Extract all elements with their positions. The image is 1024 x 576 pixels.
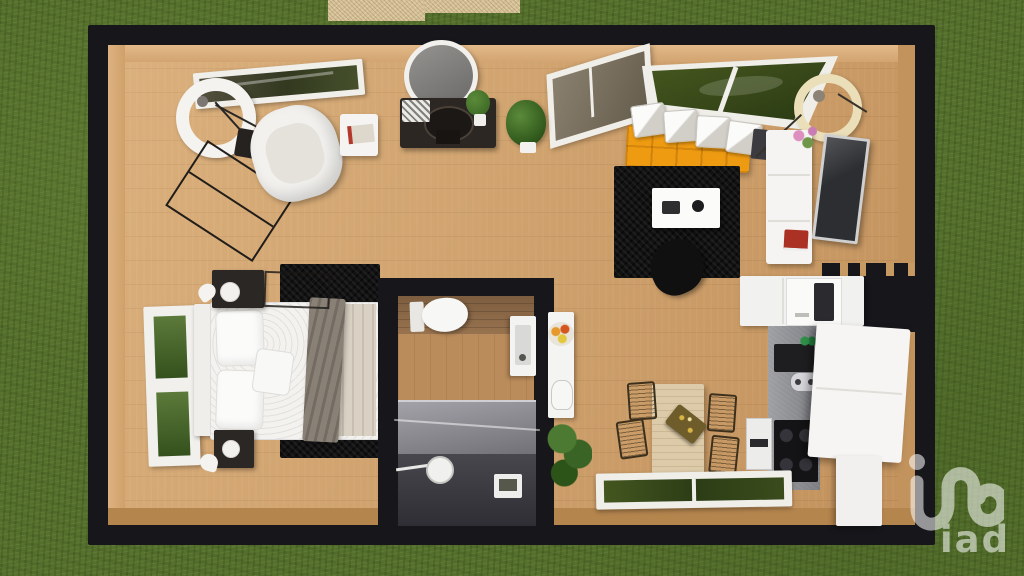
console-seam: [768, 220, 810, 222]
dining-chair: [707, 393, 738, 433]
lamp-bulb: [197, 96, 208, 107]
red-books: [783, 229, 808, 251]
bedroom-window: [143, 305, 201, 467]
cabinet-seam: [782, 278, 784, 324]
plant-pot: [520, 142, 536, 153]
remote: [662, 201, 680, 214]
washbasin: [510, 316, 536, 376]
microwave-buttons: [795, 313, 809, 317]
side-table: [340, 114, 378, 156]
microwave-door: [814, 283, 834, 321]
tissue-box: [402, 100, 430, 122]
watermark: iad: [898, 446, 1020, 566]
table-lamp: [220, 282, 240, 302]
drain: [519, 354, 526, 361]
console-seam: [768, 174, 810, 176]
faucet-knob: [795, 379, 801, 385]
flowers: [788, 124, 824, 150]
gravel-terrace-right: [424, 0, 520, 13]
plant-pot: [474, 114, 486, 126]
potted-plant: [506, 100, 546, 146]
sofa-cushion: [663, 109, 699, 143]
wall-hung-toilet: [409, 297, 470, 335]
book: [347, 124, 375, 145]
bathroom-wall-top: [378, 278, 554, 296]
decor-object: [692, 200, 704, 212]
gray-throw: [302, 297, 345, 443]
floor-plan-render: iad: [0, 0, 1024, 576]
glass-edge: [394, 419, 540, 431]
shower-glass: [398, 400, 536, 458]
door-divider: [589, 67, 594, 117]
nightstand-frame: [263, 271, 330, 309]
handle-slot: [750, 439, 768, 447]
dishwasher: [746, 418, 772, 470]
gravel-terrace-left: [328, 0, 425, 21]
dining-chair: [615, 418, 648, 460]
kettle: [551, 380, 573, 410]
dining-chair: [627, 381, 658, 421]
accent-cushion: [251, 348, 295, 397]
mini-plant: [466, 90, 490, 116]
window-divider: [692, 479, 696, 501]
sofa-cushion: [630, 102, 668, 138]
island-cart: [836, 456, 882, 526]
window-glass: [154, 315, 188, 378]
lamp-bulb: [813, 90, 825, 102]
bottom-window: [596, 470, 793, 509]
coffee-table: [652, 188, 720, 228]
kitchen-corner-wall: [860, 276, 932, 332]
fruit-bowl: [548, 322, 574, 346]
bathroom-wall-left: [378, 278, 398, 545]
rain-shower-head: [426, 456, 454, 484]
table-lamp: [222, 440, 240, 458]
window-glass: [156, 391, 190, 456]
shelf-box: [436, 130, 460, 144]
kitchen-island: [807, 323, 910, 463]
iad-logo-text: iad: [940, 518, 1010, 561]
island-seam: [816, 387, 902, 395]
dining-chair: [708, 435, 740, 476]
console-table: [400, 98, 496, 148]
microwave: [786, 278, 842, 326]
wall-inner-face-left: [108, 45, 125, 525]
shower-tray: [494, 474, 522, 498]
armchair-seat: [260, 118, 330, 189]
kitchen-plant: [546, 416, 592, 492]
counter-sink: [774, 344, 814, 372]
tray-inset: [499, 479, 517, 491]
green-bottles: [800, 334, 816, 348]
toilet-bowl: [421, 297, 468, 333]
